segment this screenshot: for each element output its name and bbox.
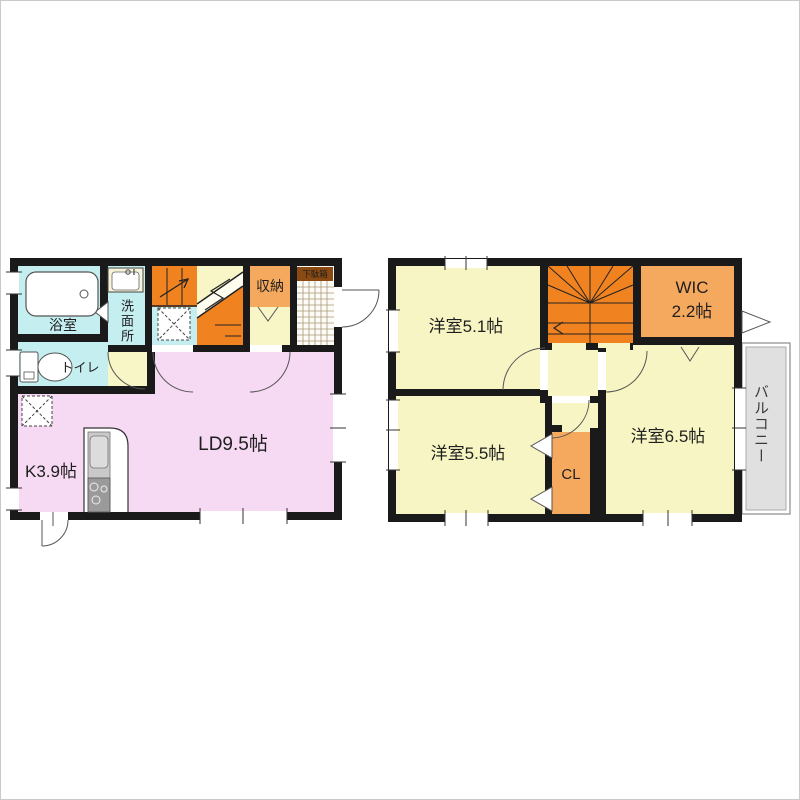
second-floor-plan: 洋室5.1帖 WIC 2.2帖 洋室6.5帖 洋室5.5帖 CL — [386, 256, 790, 526]
label-kitchen: K3.9帖 — [25, 462, 77, 481]
label-wic-size: 2.2帖 — [672, 302, 713, 321]
label-storage: 収納 — [256, 278, 284, 294]
label-shoe-cabinet: 下駄箱 — [302, 269, 328, 279]
label-bath: 浴室 — [49, 317, 77, 333]
kitchen-door-arc — [42, 520, 68, 546]
label-bedroom-55: 洋室5.5帖 — [431, 444, 506, 463]
label-washroom: 洗面所 — [120, 299, 133, 344]
label-living-dining: LD9.5帖 — [198, 433, 268, 455]
label-bedroom-51: 洋室5.1帖 — [429, 317, 504, 336]
label-balcony: バルコニー — [753, 384, 768, 464]
label-toilet: トイレ — [60, 360, 99, 375]
stairs-2f — [548, 266, 633, 343]
entrance-door-gap — [334, 287, 342, 327]
kitchen-counter-icon — [84, 428, 128, 512]
entrance-door-arc — [342, 290, 379, 327]
bathtub-icon — [26, 272, 98, 316]
floorplan-canvas: 浴室 トイレ 収納 下駄箱 LD9.5帖 K3.9帖 — [0, 0, 800, 800]
balcony-access-marker — [742, 311, 770, 333]
label-bedroom-65: 洋室6.5帖 — [631, 427, 706, 446]
floorplan-drawing: 浴室 トイレ 収納 下駄箱 LD9.5帖 K3.9帖 — [0, 0, 800, 800]
first-floor-plan: 浴室 トイレ 収納 下駄箱 LD9.5帖 K3.9帖 — [6, 258, 379, 546]
stove-icon — [88, 478, 110, 512]
label-closet: CL — [561, 466, 580, 483]
label-wic: WIC — [675, 278, 708, 297]
sink-icon — [108, 268, 143, 292]
fridge-space-icon — [22, 396, 52, 426]
washer-space-icon — [158, 308, 190, 340]
